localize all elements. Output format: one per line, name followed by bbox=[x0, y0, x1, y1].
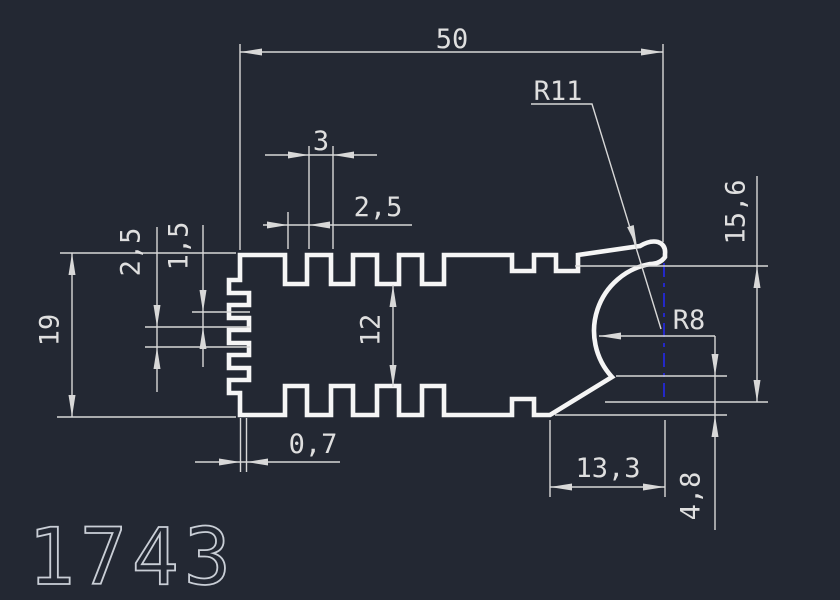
r11-leader bbox=[531, 104, 661, 329]
dim-19-arrow-top bbox=[69, 253, 76, 275]
dim-50-arrow-right bbox=[641, 49, 663, 56]
dim-13-3-arrow-right bbox=[643, 484, 665, 491]
dim-15-6-arrow-bottom bbox=[754, 380, 761, 402]
dim-1-5-label: 1,5 bbox=[164, 222, 195, 271]
dim-1-5-arrow-bottom bbox=[200, 327, 207, 349]
cad-drawing-canvas: 50 R11 3 2,5 15,6 R8 4,8 13,3 12 19 1,5 … bbox=[0, 0, 840, 600]
r11-arrow bbox=[627, 225, 637, 247]
dim-4-8-arrow-top bbox=[712, 354, 719, 376]
dim-2-5-top-arrow-left bbox=[267, 222, 288, 229]
dim-19-label: 19 bbox=[35, 314, 66, 347]
dim-2-5-left-arrow-bottom bbox=[154, 347, 161, 369]
dim-13-3-label: 13,3 bbox=[575, 453, 640, 484]
dim-15-6-arrow-top bbox=[754, 266, 761, 288]
dim-3-label: 3 bbox=[313, 126, 329, 157]
dim-0-7-arrow-left bbox=[219, 459, 241, 466]
dim-0-7-arrow-right bbox=[247, 459, 269, 466]
dim-3-arrow-right bbox=[333, 152, 354, 159]
dim-50-lines bbox=[240, 44, 663, 250]
dim-4-8-arrow-bottom bbox=[712, 415, 719, 437]
dim-1-5-arrow-top bbox=[200, 290, 207, 312]
dim-3-arrow-left bbox=[288, 152, 309, 159]
dim-19-arrow-bottom bbox=[69, 395, 76, 417]
dim-12-arrow-top bbox=[390, 285, 397, 307]
dim-2-5-left-label: 2,5 bbox=[116, 228, 147, 277]
dim-13-3-arrow-left bbox=[550, 484, 572, 491]
dim-50-label: 50 bbox=[436, 24, 469, 55]
dim-15-6-label: 15,6 bbox=[721, 179, 752, 244]
dim-0-7-label: 0,7 bbox=[289, 429, 338, 460]
r8-label: R8 bbox=[673, 305, 706, 336]
profile-outline bbox=[229, 242, 665, 416]
dim-2-5-left-arrow-top bbox=[154, 305, 161, 327]
cad-drawing: 50 R11 3 2,5 15,6 R8 4,8 13,3 12 19 1,5 … bbox=[0, 0, 840, 600]
dim-2-5-top-label: 2,5 bbox=[354, 192, 403, 223]
r8-arrow bbox=[599, 333, 621, 340]
dim-2-5-top-arrow-right bbox=[309, 222, 330, 229]
drawing-number: 1743 bbox=[28, 513, 236, 600]
dim-4-8-label: 4,8 bbox=[676, 472, 707, 521]
dim-19-lines bbox=[57, 253, 236, 417]
dim-50-arrow-left bbox=[240, 49, 262, 56]
dim-12-label: 12 bbox=[356, 314, 387, 347]
r11-label: R11 bbox=[534, 76, 583, 107]
